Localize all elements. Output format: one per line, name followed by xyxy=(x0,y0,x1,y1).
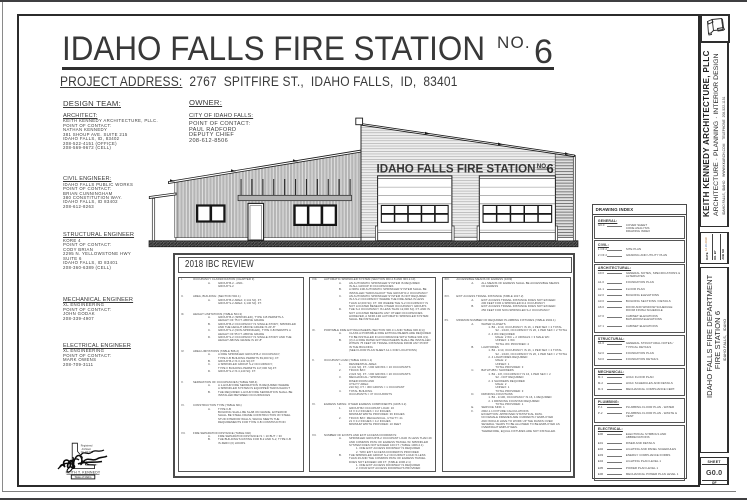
svg-text:6: 6 xyxy=(547,161,554,176)
svg-text:KEITH T. KENNEDY: KEITH T. KENNEDY xyxy=(66,470,101,474)
svg-text:IDAHO FALLS FIRE STATION: IDAHO FALLS FIRE STATION xyxy=(377,163,536,175)
svg-text:State of Idaho: State of Idaho xyxy=(75,475,92,479)
svg-text:12-16-19: 12-16-19 xyxy=(89,464,98,466)
